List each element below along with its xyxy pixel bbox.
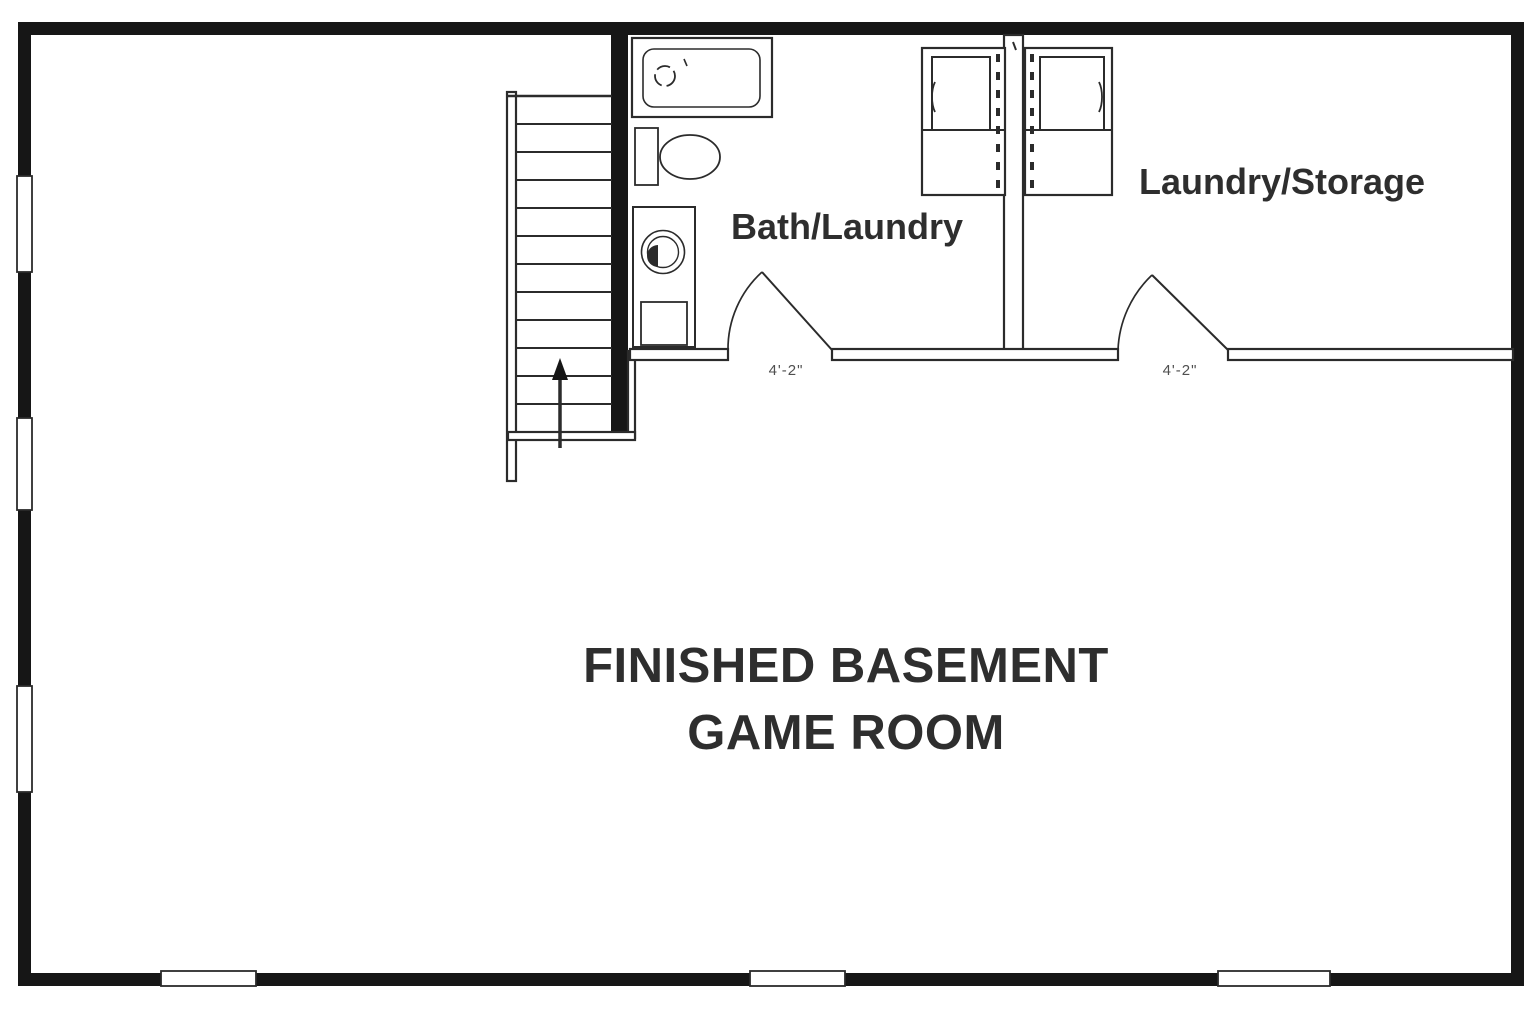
washer-door: [932, 57, 990, 130]
door-swing-icon: [1118, 275, 1228, 350]
stair-wall: [611, 35, 628, 438]
window-icon: [17, 686, 32, 792]
floor-plan-drawing: [0, 0, 1536, 1024]
dryer-icon: [1025, 48, 1112, 195]
door-swing-icon: [728, 272, 832, 350]
toilet-bowl: [660, 135, 720, 179]
stair-wall-face: [628, 351, 635, 438]
exterior-wall-right: [1511, 22, 1524, 986]
sink-vanity-icon: [633, 207, 695, 347]
stair-bottom-edge: [508, 432, 635, 440]
room-divider-wall: [1004, 35, 1023, 357]
door-arc: [1118, 275, 1152, 350]
exterior-wall-top: [18, 22, 1524, 35]
room-label-game-room: FINISHED BASEMENT GAME ROOM: [543, 633, 1149, 767]
toilet-icon: [635, 128, 720, 185]
room-label-bath-laundry: Bath/Laundry: [731, 206, 963, 247]
room-label-laundry-storage: Laundry/Storage: [1139, 161, 1425, 202]
window-icon: [1218, 971, 1330, 986]
window-icon: [17, 176, 32, 272]
stair-stringer: [507, 92, 516, 481]
vanity-cabinet: [641, 302, 687, 345]
bathtub-icon: [632, 38, 772, 117]
door-width-label: 4'-2": [736, 362, 836, 379]
dryer-door: [1040, 57, 1104, 130]
floor-plan: Bath/Laundry Laundry/Storage 4'-2" 4'-2"…: [0, 0, 1536, 1024]
door-width-label: 4'-2": [1130, 362, 1230, 379]
door-arc: [728, 272, 762, 350]
window-icon: [750, 971, 845, 986]
south-wall-segment: [832, 349, 1118, 360]
door-leaf: [1152, 275, 1228, 350]
toilet-tank: [635, 128, 658, 185]
title-line-1: FINISHED BASEMENT: [543, 633, 1149, 700]
door-leaf: [762, 272, 832, 350]
south-wall-segment: [630, 349, 728, 360]
window-icon: [161, 971, 256, 986]
south-wall-segment: [1228, 349, 1513, 360]
title-line-2: GAME ROOM: [543, 700, 1149, 767]
washer-icon: [922, 48, 1005, 195]
window-icon: [17, 418, 32, 510]
